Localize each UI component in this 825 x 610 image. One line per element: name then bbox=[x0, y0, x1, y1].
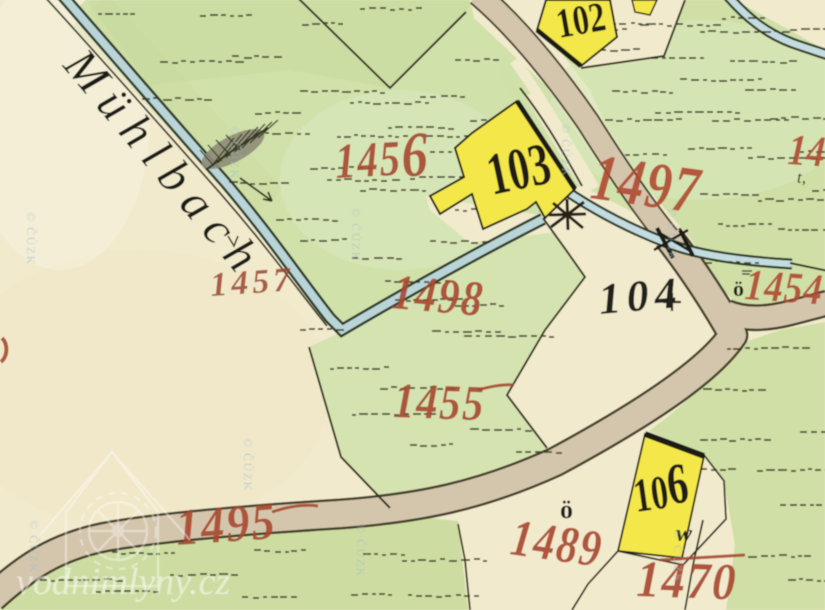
svg-text:1454: 1454 bbox=[743, 260, 824, 314]
svg-text:1498: 1498 bbox=[390, 265, 486, 328]
svg-text:ö: ö bbox=[733, 276, 744, 301]
svg-text:© ČÚZK: © ČÚZK bbox=[24, 212, 38, 266]
svg-text:© ČÚZK: © ČÚZK bbox=[559, 124, 573, 178]
svg-text:© ČÚZK: © ČÚZK bbox=[241, 438, 255, 492]
svg-text:1497: 1497 bbox=[587, 139, 706, 227]
svg-text:14: 14 bbox=[786, 125, 825, 176]
svg-text:1457: 1457 bbox=[209, 261, 295, 304]
svg-text:1495: 1495 bbox=[174, 492, 279, 557]
svg-text:vodnimlyny.cz: vodnimlyny.cz bbox=[16, 561, 230, 603]
svg-text:1455: 1455 bbox=[393, 374, 487, 432]
svg-text:104: 104 bbox=[597, 268, 685, 324]
svg-text:102: 102 bbox=[553, 0, 610, 48]
svg-text:© ČÚZK: © ČÚZK bbox=[27, 520, 41, 574]
svg-text:© ČÚZK: © ČÚZK bbox=[349, 208, 363, 262]
svg-text:© ČÚZK: © ČÚZK bbox=[671, 530, 685, 584]
svg-text:103: 103 bbox=[481, 131, 556, 209]
svg-text:© ČÚZK: © ČÚZK bbox=[354, 524, 368, 578]
svg-text:ö: ö bbox=[560, 495, 573, 524]
svg-text:© ČÚZK: © ČÚZK bbox=[228, 126, 242, 180]
svg-text:© ČÚZK: © ČÚZK bbox=[665, 208, 679, 262]
